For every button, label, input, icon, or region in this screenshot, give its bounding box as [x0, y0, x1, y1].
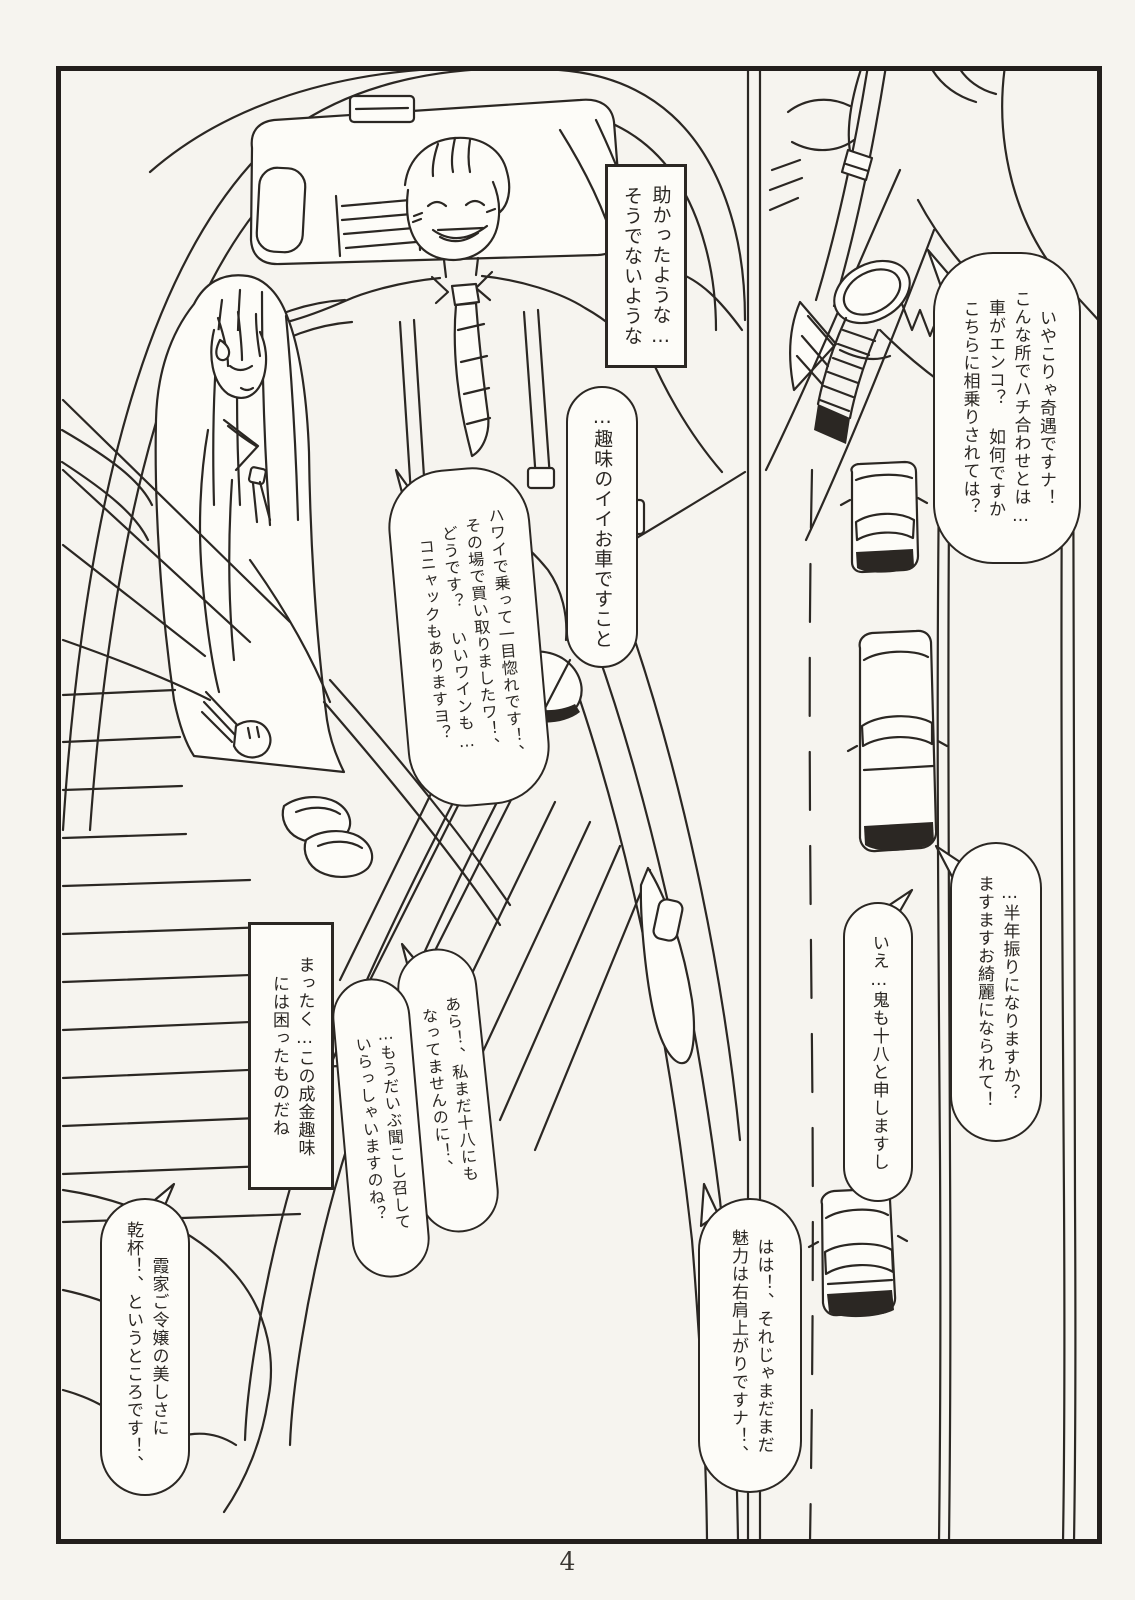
page-number: 4	[0, 1547, 1135, 1576]
panel-frame	[56, 66, 1102, 1544]
manga-page: 助かったような… そうでないような いやこりゃ奇遇ですナ！ こんな所でハチ合わせ…	[0, 0, 1135, 1600]
